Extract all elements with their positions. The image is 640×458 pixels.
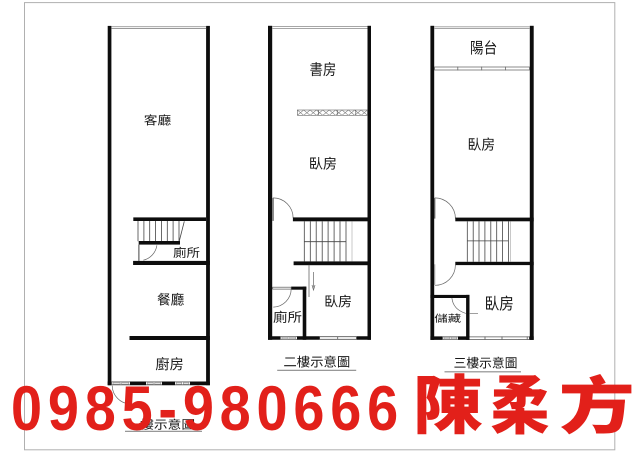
svg-text:0985-980666: 0985-980666 xyxy=(11,372,398,443)
